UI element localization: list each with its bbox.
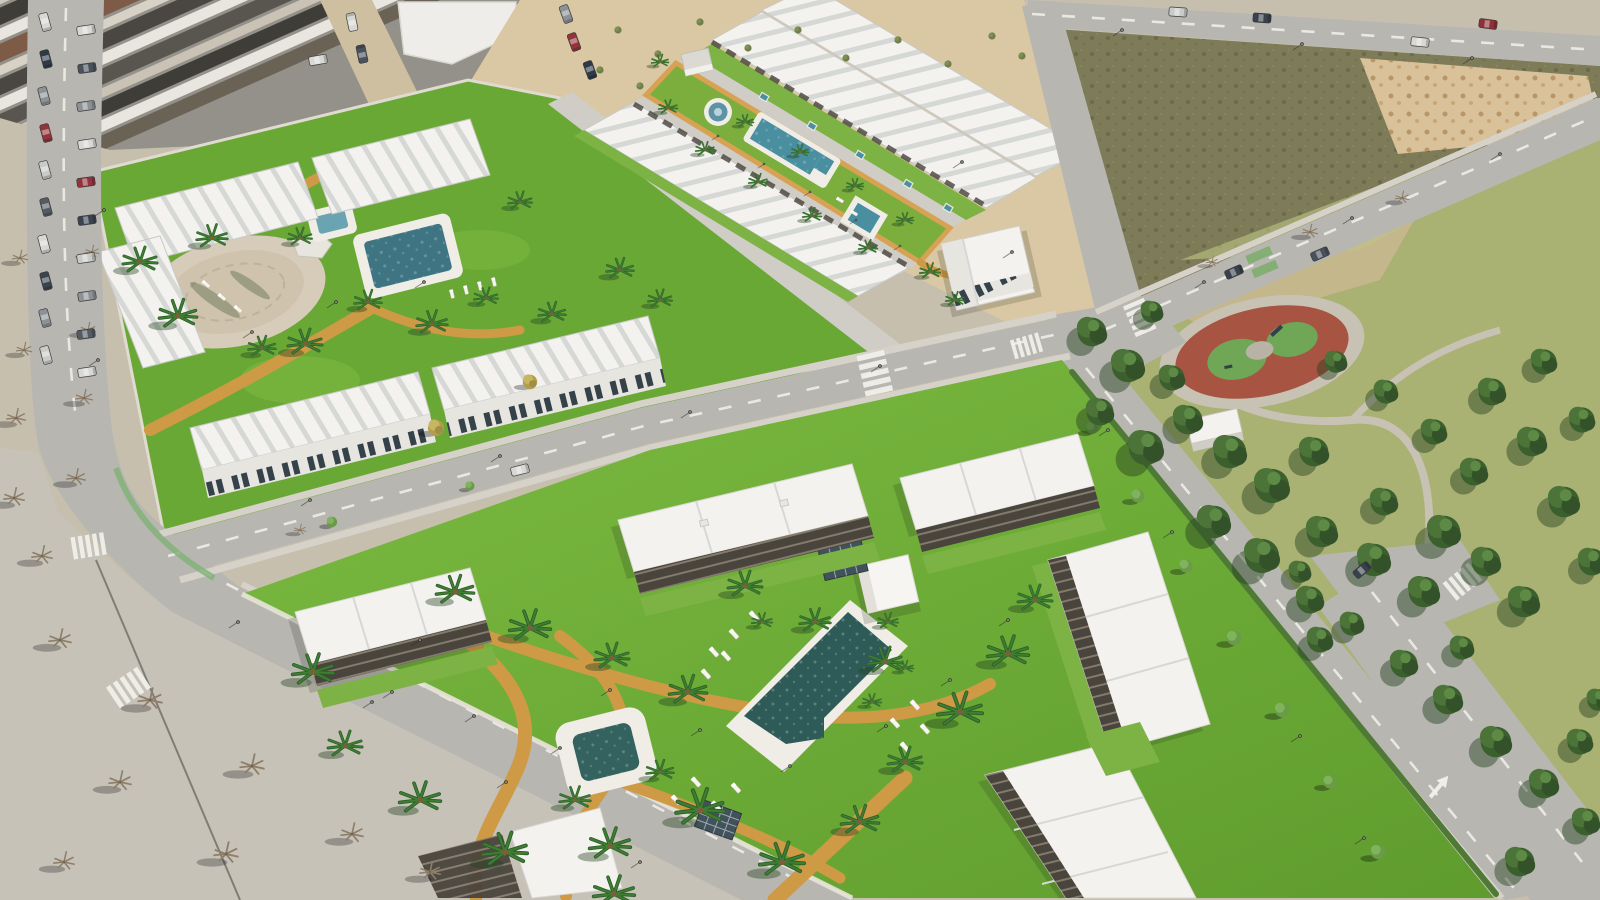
fountain (704, 98, 732, 126)
shrub-stamp (944, 60, 951, 67)
shrub-stamp (744, 44, 751, 51)
car (1253, 13, 1272, 23)
shrub-stamp (894, 36, 901, 43)
shrub-stamp (696, 18, 703, 25)
shrub-stamp (988, 32, 995, 39)
shrub-stamp (794, 26, 801, 33)
car (1169, 7, 1188, 17)
car (1411, 37, 1430, 48)
shrub-stamp (842, 54, 849, 61)
render-canvas (0, 0, 1600, 900)
shrub-stamp (1018, 52, 1025, 59)
shrub-stamp (614, 26, 621, 33)
shrub-stamp (636, 82, 643, 89)
shrub-stamp (596, 66, 603, 73)
aerial-render-image (0, 0, 1600, 900)
